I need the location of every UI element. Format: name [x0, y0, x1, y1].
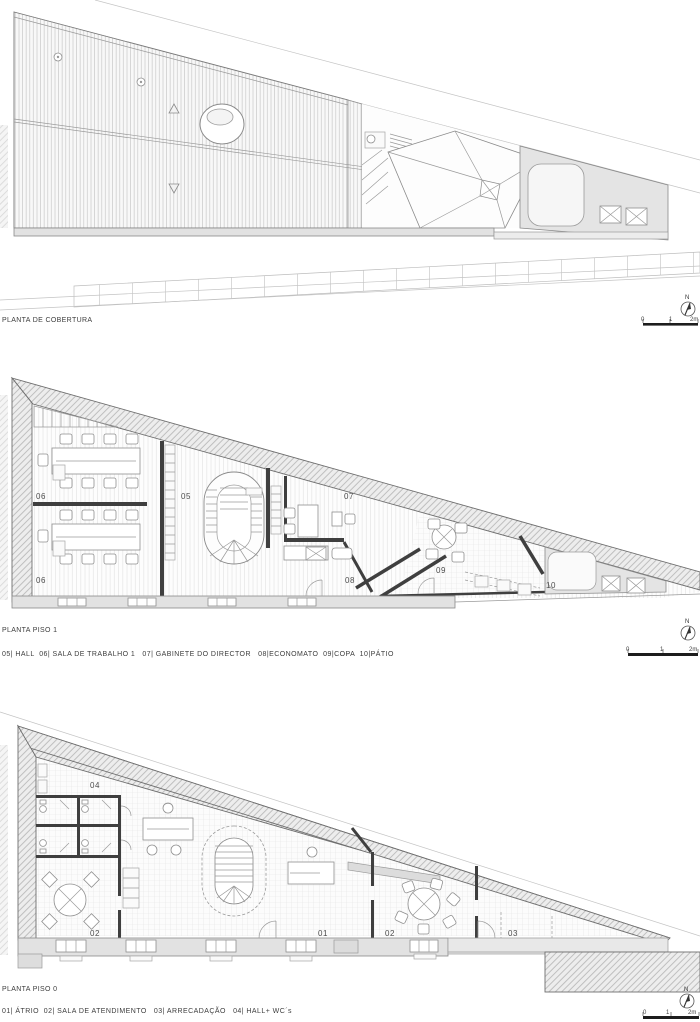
- room-label-10: 10: [546, 581, 556, 590]
- roof-faceted-skylight: [362, 104, 540, 228]
- floor1-oval-stair: [204, 472, 264, 564]
- floor0-plan-title: PLANTA PISO 0: [2, 986, 57, 993]
- roof-plan: N 0 1 2m: [0, 0, 700, 326]
- scale-bar: 0 1 2m: [641, 317, 698, 326]
- plan-sheet: N 0 1 2m: [0, 0, 700, 1022]
- svg-text:2m: 2m: [690, 317, 698, 323]
- svg-text:2m: 2m: [688, 1010, 696, 1016]
- floor1-plan-legend: 05| HALL 06| SALA DE TRABALHO 1 07| GABI…: [2, 651, 394, 658]
- room-label-03: 03: [508, 929, 518, 938]
- room-label-07: 07: [344, 492, 354, 501]
- roof-skylight-oval: [200, 104, 244, 144]
- room-label-01: 01: [318, 929, 328, 938]
- north-compass: N: [681, 295, 695, 316]
- north-compass: N: [681, 619, 695, 640]
- plans-drawing: N 0 1 2m: [0, 0, 700, 1022]
- floor0-plan: 04 02 01 02 03 N 0 1 2m: [0, 712, 700, 1019]
- room-label-08: 08: [345, 576, 355, 585]
- svg-text:0: 0: [643, 1010, 647, 1016]
- svg-text:N: N: [684, 987, 688, 993]
- svg-text:1: 1: [660, 647, 664, 653]
- floor1-plan: 06 05 06 07 08 09 10 N 0 1 2m: [0, 378, 700, 656]
- svg-text:1: 1: [669, 317, 673, 323]
- roof-facade-band: [14, 228, 494, 236]
- floor0-plan-legend: 01| ÁTRIO 02| SALA DE ATENDIMENTO 03| AR…: [2, 1008, 292, 1015]
- scale-bar: 0 1 2m: [643, 1010, 699, 1019]
- economato-furniture: [284, 546, 352, 560]
- site-block: [545, 952, 700, 992]
- floor1-left-wall: [12, 378, 32, 602]
- roof-corrugated: [14, 12, 348, 228]
- svg-text:2m: 2m: [689, 647, 697, 653]
- room-label-09: 09: [436, 566, 446, 575]
- north-label: N: [685, 295, 689, 301]
- sidewalk: [0, 252, 700, 310]
- room-label-06-upper: 06: [36, 492, 46, 501]
- scale-bar: 0 1 2m: [626, 647, 698, 656]
- roof-plan-title: PLANTA DE COBERTURA: [2, 317, 92, 324]
- svg-text:1: 1: [666, 1010, 670, 1016]
- floor0-left-wall: [18, 726, 36, 940]
- room-label-05: 05: [181, 492, 191, 501]
- room-label-04: 04: [90, 781, 100, 790]
- svg-text:N: N: [685, 619, 689, 625]
- room-label-02-right: 02: [385, 929, 395, 938]
- neighbour-wall-cut: [0, 125, 8, 228]
- floor1-plan-title: PLANTA PISO 1: [2, 627, 57, 634]
- roof-patio: [520, 146, 668, 240]
- room-label-02-left: 02: [90, 929, 100, 938]
- room-label-06-lower: 06: [36, 576, 46, 585]
